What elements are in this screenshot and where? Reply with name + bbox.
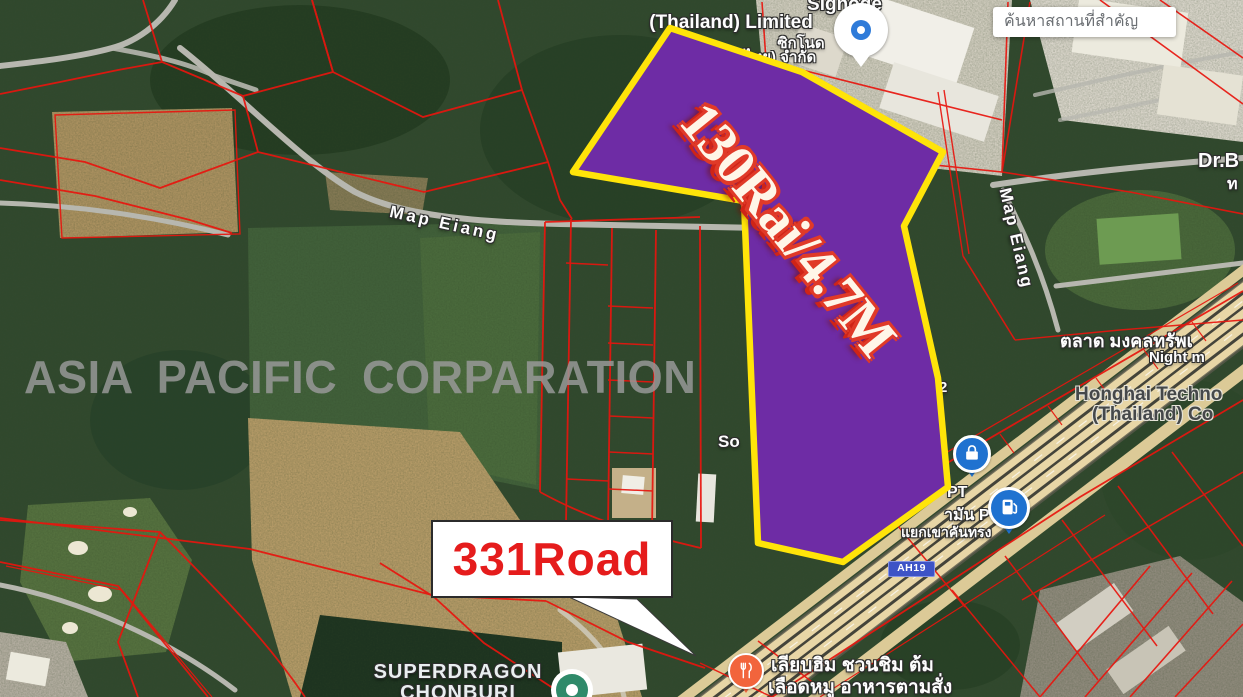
map-canvas[interactable]: Signode (Thailand) Limited ซิกโนด (ไทย) … <box>0 0 1243 697</box>
road-callout-box: 331Road <box>431 520 673 598</box>
search-box[interactable] <box>993 7 1176 37</box>
road-label-junction: แยกเขาคันทรง <box>901 522 991 544</box>
poi-label-dr-clipped[interactable]: Dr.B <box>1198 150 1239 173</box>
road-callout-label: 331Road <box>453 532 652 586</box>
restaurant-icon[interactable] <box>728 653 766 697</box>
road-label-soi-clipped: So <box>718 432 740 452</box>
search-input[interactable] <box>993 7 1176 37</box>
poi-label-signode-thai2[interactable]: (ไทย) จำกัด <box>728 45 828 69</box>
watermark: ASIA PACIFIC CORPARATION <box>24 350 696 404</box>
road-label-map-eiang-west: Map Eiang <box>388 202 502 246</box>
map-label-fragment-2: 2 <box>939 379 947 396</box>
poi-label-restaurant-line2[interactable]: เลือดหมู อาหารตามสั่ง <box>768 672 952 697</box>
poi-label-superdragon-line2[interactable]: CHONBURI <box>358 682 558 697</box>
golf-course-icon[interactable] <box>551 669 593 697</box>
gas-station-icon[interactable] <box>988 487 1030 539</box>
route-shield-ah19: AH19 <box>888 561 935 577</box>
area-label-honghai-line1[interactable]: Honghai Techno <box>1075 384 1222 406</box>
shopping-bag-icon[interactable] <box>953 435 991 481</box>
signode-place-pin-icon[interactable] <box>834 3 888 69</box>
poi-label-pt[interactable]: PT <box>947 484 967 502</box>
poi-label-superdragon-line1[interactable]: SUPERDRAGON <box>358 661 558 684</box>
poi-label-night-market[interactable]: Night m <box>1149 349 1205 366</box>
poi-label-dr-clipped-2[interactable]: ท <box>1227 172 1238 197</box>
area-label-honghai-line2[interactable]: (Thailand) Co <box>1092 404 1213 426</box>
road-label-map-eiang-east: Map Eiang <box>995 186 1038 291</box>
